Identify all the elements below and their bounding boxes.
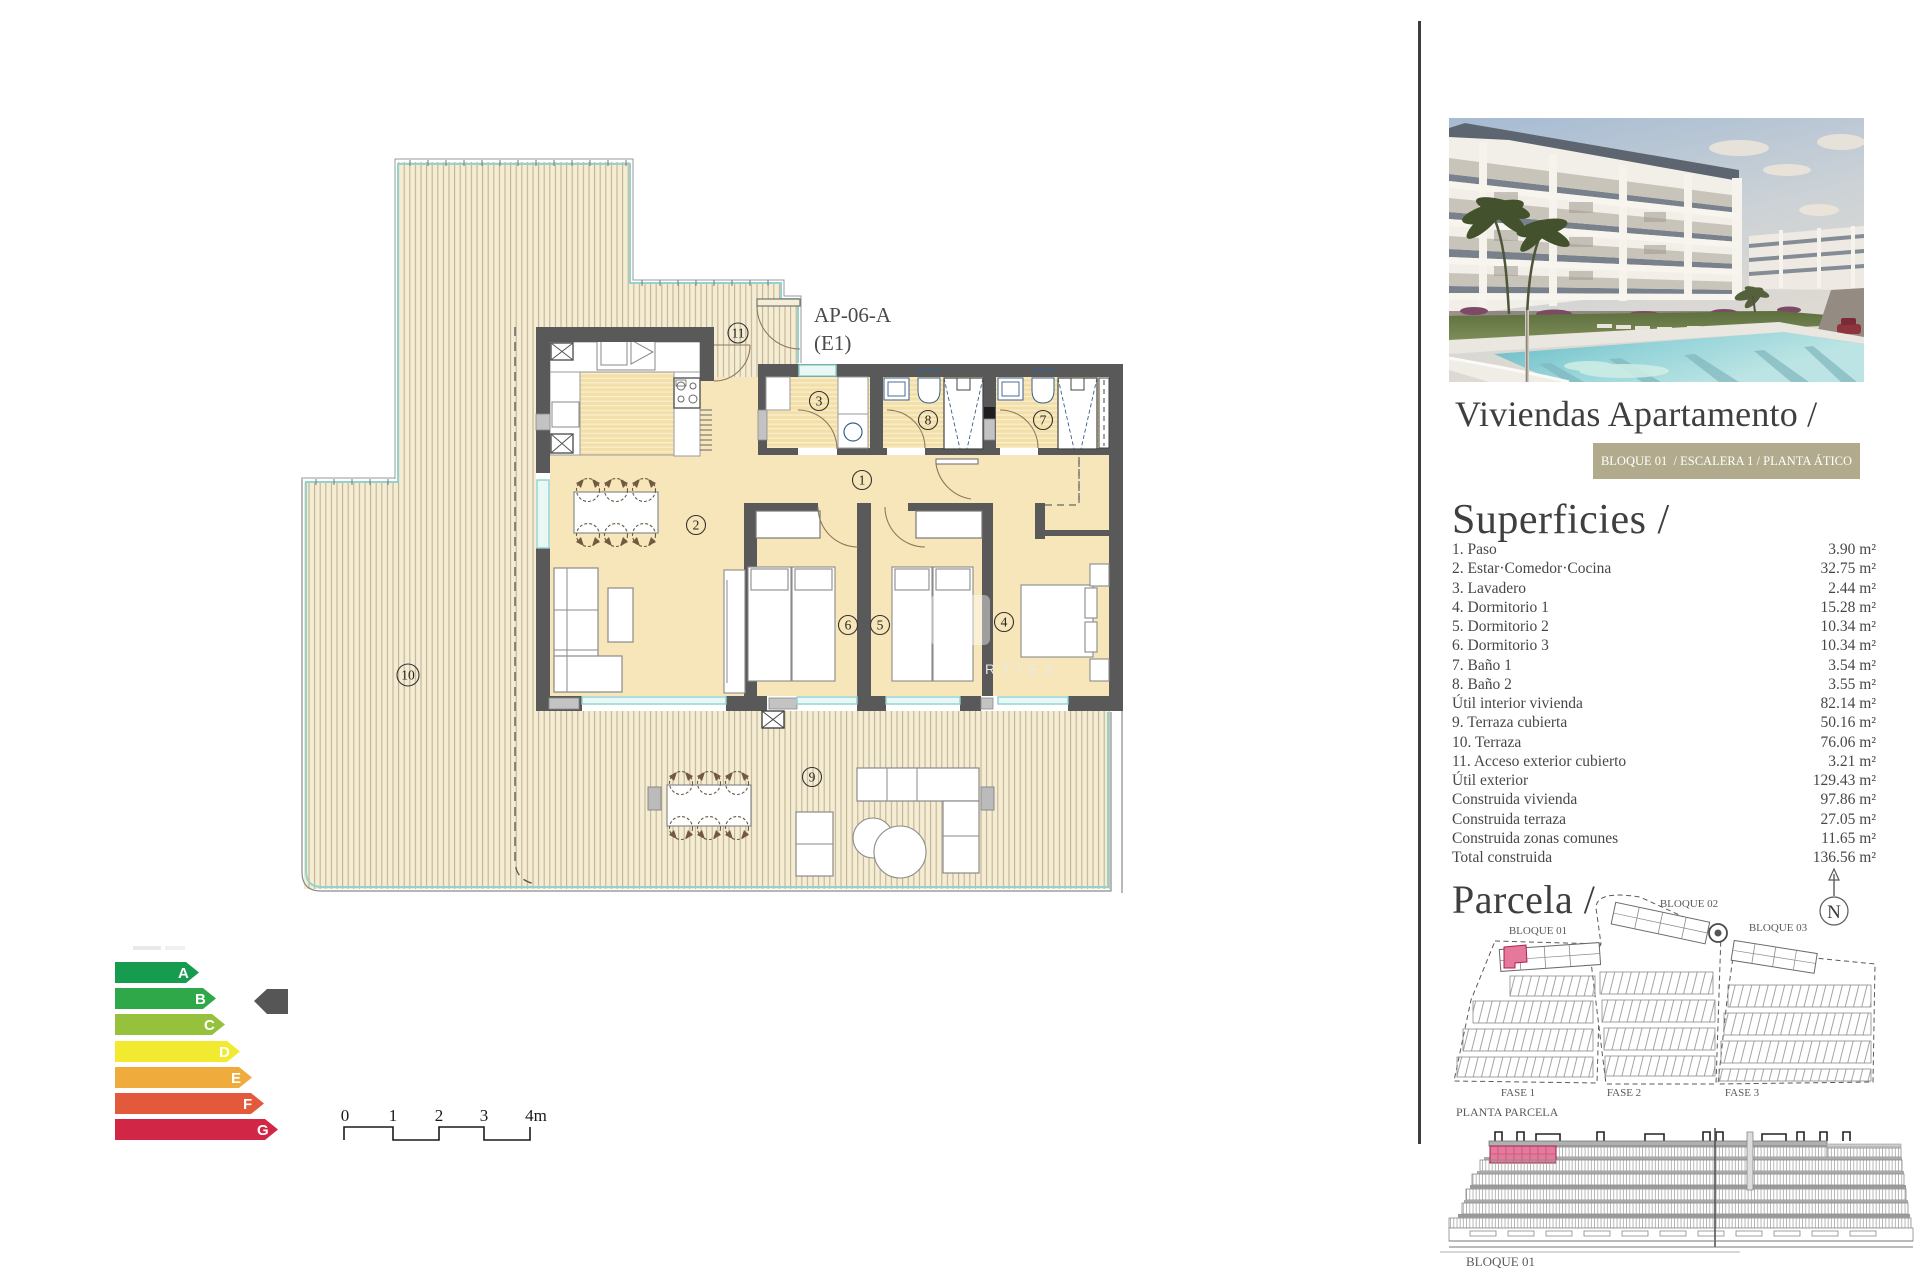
svg-text:E: E <box>231 1070 241 1087</box>
svg-text:11: 11 <box>732 326 745 341</box>
svg-text:BLOQUE 01: BLOQUE 01 <box>1466 1254 1535 1269</box>
svg-text:PLANTA PARCELA: PLANTA PARCELA <box>1456 1105 1559 1119</box>
svg-text:4: 4 <box>1001 615 1008 630</box>
svg-text:4m: 4m <box>525 1106 547 1125</box>
svg-text:9: 9 <box>809 770 816 785</box>
svg-text:10: 10 <box>401 668 415 683</box>
svg-text:A: A <box>178 965 189 982</box>
svg-text:B: B <box>195 991 206 1008</box>
svg-text:AP-06-A: AP-06-A <box>814 303 892 327</box>
svg-text:BLOQUE 02: BLOQUE 02 <box>1660 898 1718 910</box>
svg-text:FASE 3: FASE 3 <box>1725 1087 1760 1099</box>
svg-text:RTIES: RTIES <box>985 661 1061 677</box>
svg-text:2: 2 <box>435 1106 444 1125</box>
svg-text:FASE 2: FASE 2 <box>1607 1087 1641 1099</box>
svg-text:D: D <box>219 1044 230 1061</box>
svg-text:3: 3 <box>816 394 823 409</box>
svg-text:(E1): (E1) <box>814 331 851 355</box>
svg-text:N: N <box>1827 902 1841 923</box>
svg-text:6: 6 <box>845 618 852 633</box>
svg-text:BLOQUE 03: BLOQUE 03 <box>1749 922 1808 934</box>
svg-text:5: 5 <box>877 618 884 633</box>
svg-text:BLOQUE 01: BLOQUE 01 <box>1509 925 1567 937</box>
svg-text:7: 7 <box>1040 413 1047 428</box>
svg-text:1: 1 <box>389 1106 398 1125</box>
svg-text:F: F <box>243 1096 252 1113</box>
svg-text:3: 3 <box>480 1106 489 1125</box>
svg-text:8: 8 <box>925 413 932 428</box>
svg-text:1: 1 <box>859 473 866 488</box>
svg-text:FASE 1: FASE 1 <box>1501 1087 1535 1099</box>
svg-text:C: C <box>204 1017 215 1034</box>
svg-text:G: G <box>257 1122 269 1139</box>
svg-text:2: 2 <box>693 518 700 533</box>
svg-text:0: 0 <box>341 1106 350 1125</box>
